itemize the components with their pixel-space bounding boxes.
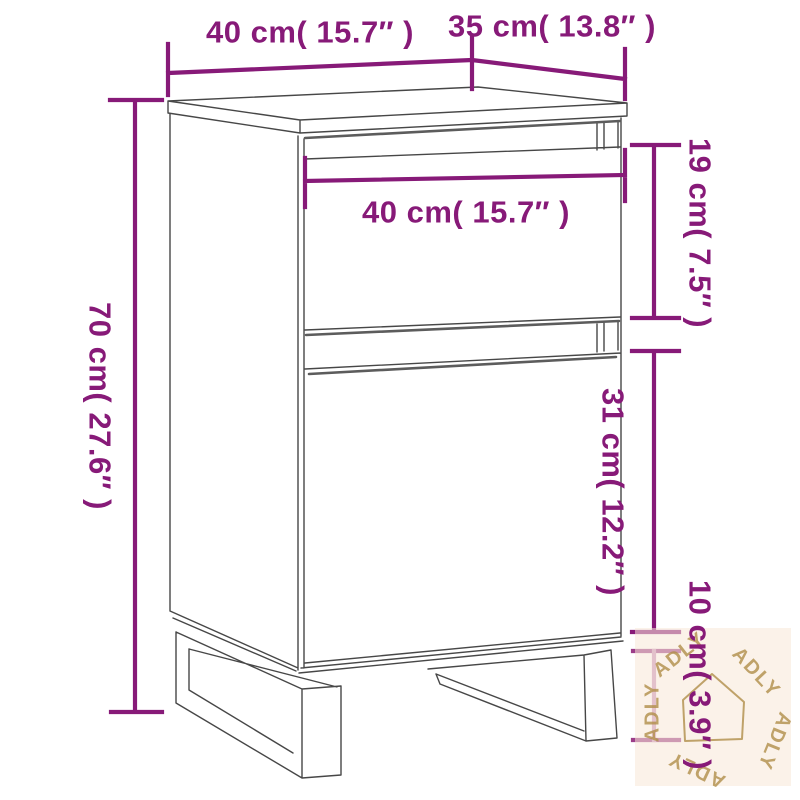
dim-door-height-line — [632, 351, 679, 632]
product-dimension-diagram: ADLY ADLY ADLY ADLY ADLY 40 cm( 15.7″ ) … — [0, 0, 800, 800]
dim-overall-height-line — [110, 100, 162, 712]
dim-label-drawer-height: 19 cm( 7.5″ ) — [685, 138, 716, 328]
watermark-brand-text: ADLY — [642, 682, 665, 743]
cabinet-top-board — [168, 87, 627, 133]
dim-label-door-height: 31 cm( 12.2″ ) — [598, 388, 629, 596]
dim-label-top-width: 40 cm( 15.7″ ) — [206, 17, 414, 48]
cabinet-left-leg — [176, 632, 341, 778]
watermark-brand-text: ADLY — [752, 709, 796, 774]
dim-label-top-depth: 35 cm( 13.8″ ) — [448, 11, 656, 42]
dimension-lines — [110, 37, 679, 712]
dim-label-drawer-width: 40 cm( 15.7″ ) — [362, 197, 570, 228]
cabinet-shadow-edges — [305, 121, 620, 374]
dim-label-overall-height: 70 cm( 27.6″ ) — [85, 302, 116, 510]
cabinet-outline — [168, 87, 627, 778]
cabinet-right-leg — [428, 650, 617, 741]
dim-label-leg-height: 10 cm( 3.9″ ) — [685, 580, 716, 770]
dim-drawer-height-line — [632, 145, 679, 318]
